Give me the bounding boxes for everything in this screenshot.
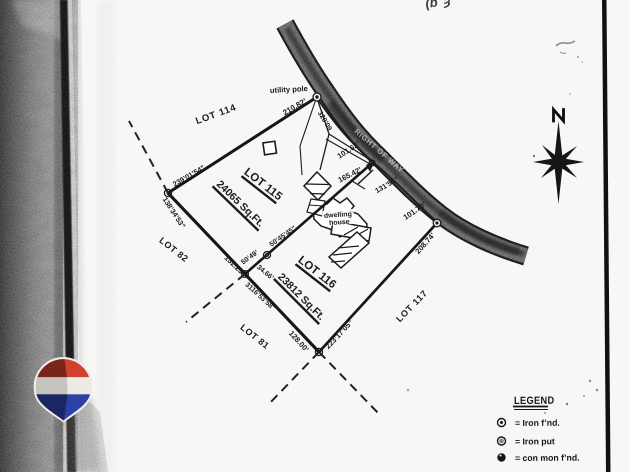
svg-text:= Iron put: = Iron put (515, 436, 555, 446)
svg-text:LEGEND: LEGEND (514, 395, 555, 407)
svg-text:= Iron f’nd.: = Iron f’nd. (515, 418, 560, 428)
svg-text:house: house (329, 219, 350, 227)
svg-text:= con mon f’nd.: = con mon f’nd. (515, 453, 580, 463)
